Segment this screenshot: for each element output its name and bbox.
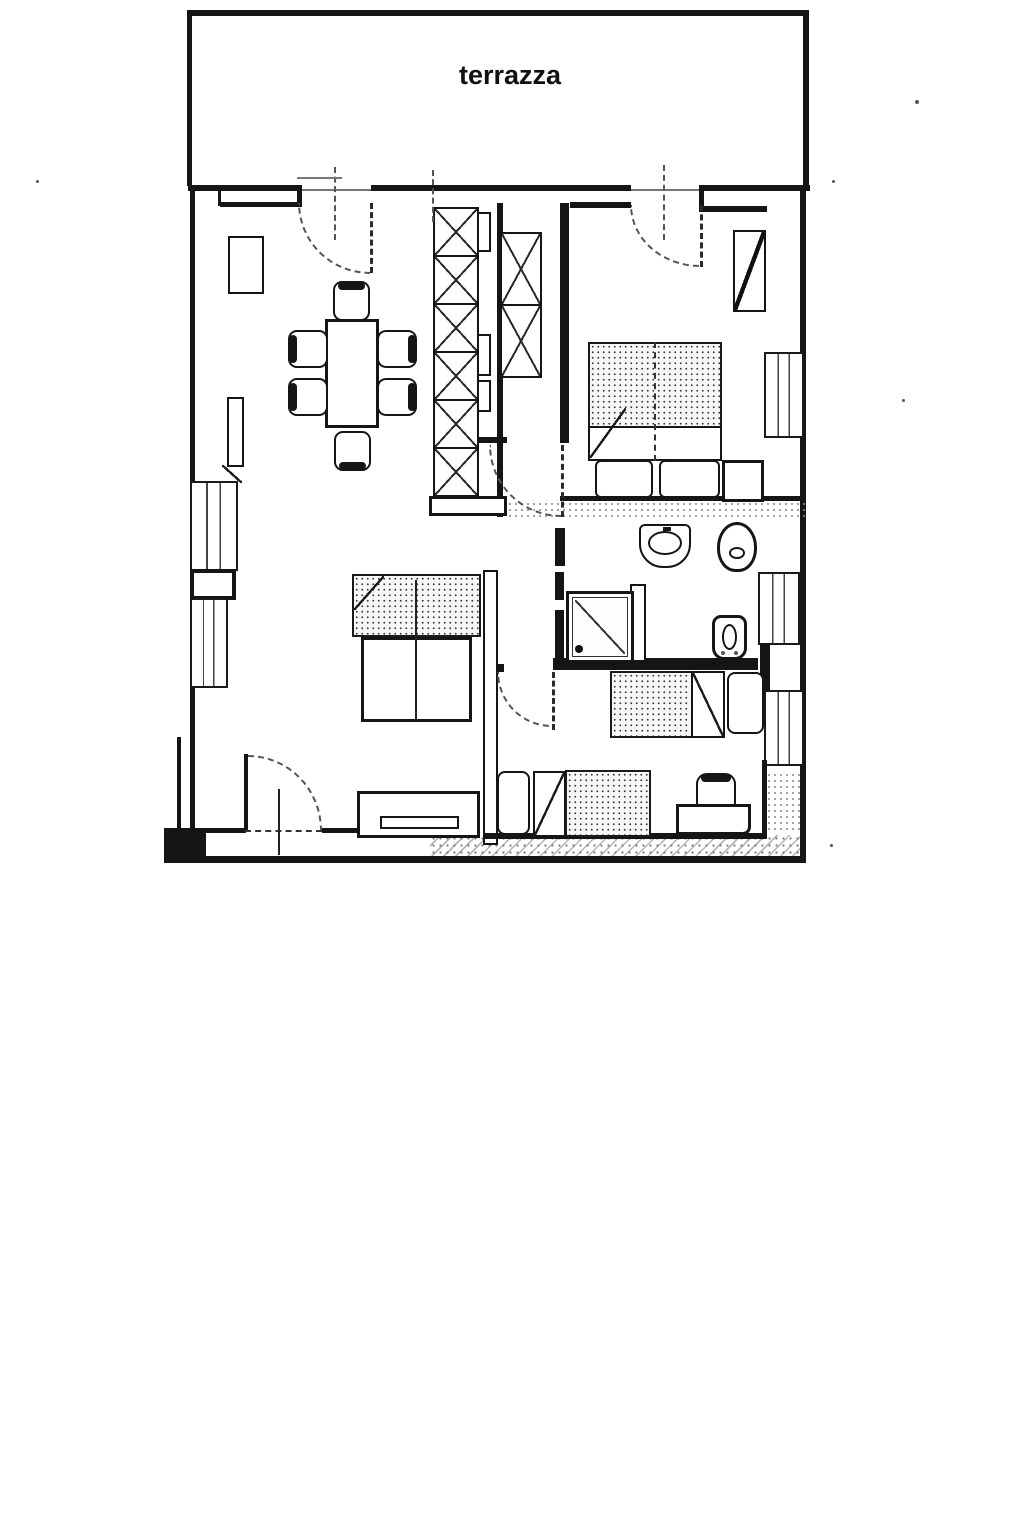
dining-chair-left-1 [288, 330, 328, 368]
bed1-nightstand [722, 460, 764, 502]
closet-cell [435, 353, 477, 401]
closet-shelf-2 [477, 334, 491, 376]
door-entrance-threshold [245, 830, 322, 832]
wall-chase-right-stipple [766, 772, 800, 834]
twin-bed1-blanket [610, 671, 693, 738]
dining-table [325, 319, 379, 428]
bathroom-sliding-door-dash-2 [555, 572, 564, 600]
bidet-tap-1 [721, 651, 725, 655]
wardrobe-cell [502, 234, 540, 306]
sideboard-lower [227, 397, 244, 467]
twin-bed1-fold-line [693, 673, 723, 736]
bathroom-sliding-door-dash-1 [555, 528, 565, 566]
threshold-line-2 [631, 189, 701, 191]
axis-line-door2 [663, 165, 665, 240]
wardrobe-hall [500, 232, 542, 378]
window-right-bedroom3 [764, 690, 804, 766]
dining-chair-left-2 [288, 378, 328, 416]
wardrobe-bedroom1 [733, 230, 766, 312]
closet-shelf-3 [477, 380, 491, 412]
bidet-tap-2 [734, 651, 738, 655]
closet-cell [435, 257, 477, 305]
dining-chair-right-1 [377, 330, 417, 368]
shower [566, 591, 634, 663]
twin-bed2-blanket [565, 770, 651, 837]
sink-faucet [663, 527, 671, 531]
scan-speck [902, 399, 905, 402]
door-bedroom1-arc [630, 205, 700, 267]
shower-drain [575, 645, 583, 653]
window-left-1 [190, 481, 238, 571]
axis-line-closet [432, 170, 434, 222]
door-twinroom-leaf [552, 672, 555, 730]
chair-backrest [701, 774, 731, 782]
scan-speck [832, 180, 835, 183]
window-right-bathroom [758, 572, 800, 645]
terrace-outline [187, 10, 809, 186]
sink [639, 524, 691, 568]
wardrobe-cell [502, 306, 540, 376]
twin-bed2-fold [533, 771, 566, 837]
scan-speck [915, 100, 919, 104]
bed1-footboard-left [595, 460, 653, 498]
closet-cell [435, 449, 477, 495]
wall-stub-hall-door [479, 437, 507, 443]
wall-jog-bedroom3 [762, 760, 767, 838]
window-top-inner-line [220, 202, 302, 207]
door-entrance-axis [278, 789, 280, 855]
dresser-drawer [380, 816, 459, 829]
shower-diagonal [575, 600, 625, 654]
bed2-center-line [415, 580, 417, 722]
bidet [712, 615, 747, 660]
sink-basin [648, 531, 682, 555]
scan-speck [36, 180, 39, 183]
bed1-center-line [654, 342, 656, 461]
wall-bottom-outer [164, 856, 806, 863]
window-left-2 [190, 598, 228, 688]
twin-bed1-fold [691, 671, 725, 738]
door-living-leaf [370, 203, 373, 273]
wall-left-upper [190, 185, 195, 483]
scan-speck [830, 844, 833, 847]
closet-cell [435, 305, 477, 353]
closet-base-plate [429, 496, 507, 516]
closet-cell [435, 401, 477, 449]
window-right-bedroom1 [764, 352, 804, 438]
wall-bedroom1-top-inner [703, 206, 767, 212]
floor-plan-page: terrazza [0, 0, 1024, 1536]
wall-top [188, 185, 810, 191]
chair-backrest [289, 383, 297, 411]
wardrobe-diagonal [735, 232, 764, 310]
dining-chair-bottom [334, 431, 371, 471]
sideboard-upper [228, 236, 264, 294]
wall-top-inner-face-left-of-door2 [570, 202, 631, 208]
closet-column [433, 207, 479, 497]
bed1-footboard-right [659, 460, 720, 498]
chair-backrest [289, 335, 297, 363]
door-entrance-arc [248, 755, 322, 830]
window-top-jamb-left [218, 190, 221, 206]
twin-bed1-pillow [727, 672, 764, 734]
desk [676, 804, 751, 835]
chair-backrest [408, 383, 416, 411]
bidet-basin [722, 624, 737, 650]
toilet [717, 522, 757, 572]
dining-chair-top [333, 281, 370, 321]
chair-backrest [338, 282, 365, 290]
wall-bedroom1-left [560, 203, 569, 443]
terrace-label: terrazza [400, 60, 620, 91]
closet-shelf-1 [477, 212, 491, 252]
wall-left-lower [190, 686, 195, 830]
twin-bed2-fold-line [535, 773, 564, 835]
chair-backrest [339, 462, 366, 470]
wall-between-bottom-rooms [483, 570, 498, 845]
dresser [357, 791, 480, 838]
door-twinroom-arc [497, 672, 552, 727]
twin-bed2-pillow [497, 771, 530, 835]
bed2-fold [354, 576, 384, 610]
door-bedroom1-leaf [700, 205, 703, 267]
closet-cell [435, 209, 477, 257]
tick-top-wall [297, 177, 342, 179]
toilet-bowl [729, 547, 745, 559]
bathroom-sliding-door-dash-3 [555, 610, 564, 660]
wall-left-jog [177, 737, 181, 830]
bed1-fold [590, 408, 626, 458]
wall-bottom-inner-a [205, 828, 246, 833]
dining-chair-right-2 [377, 378, 417, 416]
door-hallway-leaf [561, 445, 564, 517]
sideboard-corner-line [222, 465, 242, 483]
chair-backrest [408, 335, 416, 363]
wall-left-pier [190, 569, 236, 600]
